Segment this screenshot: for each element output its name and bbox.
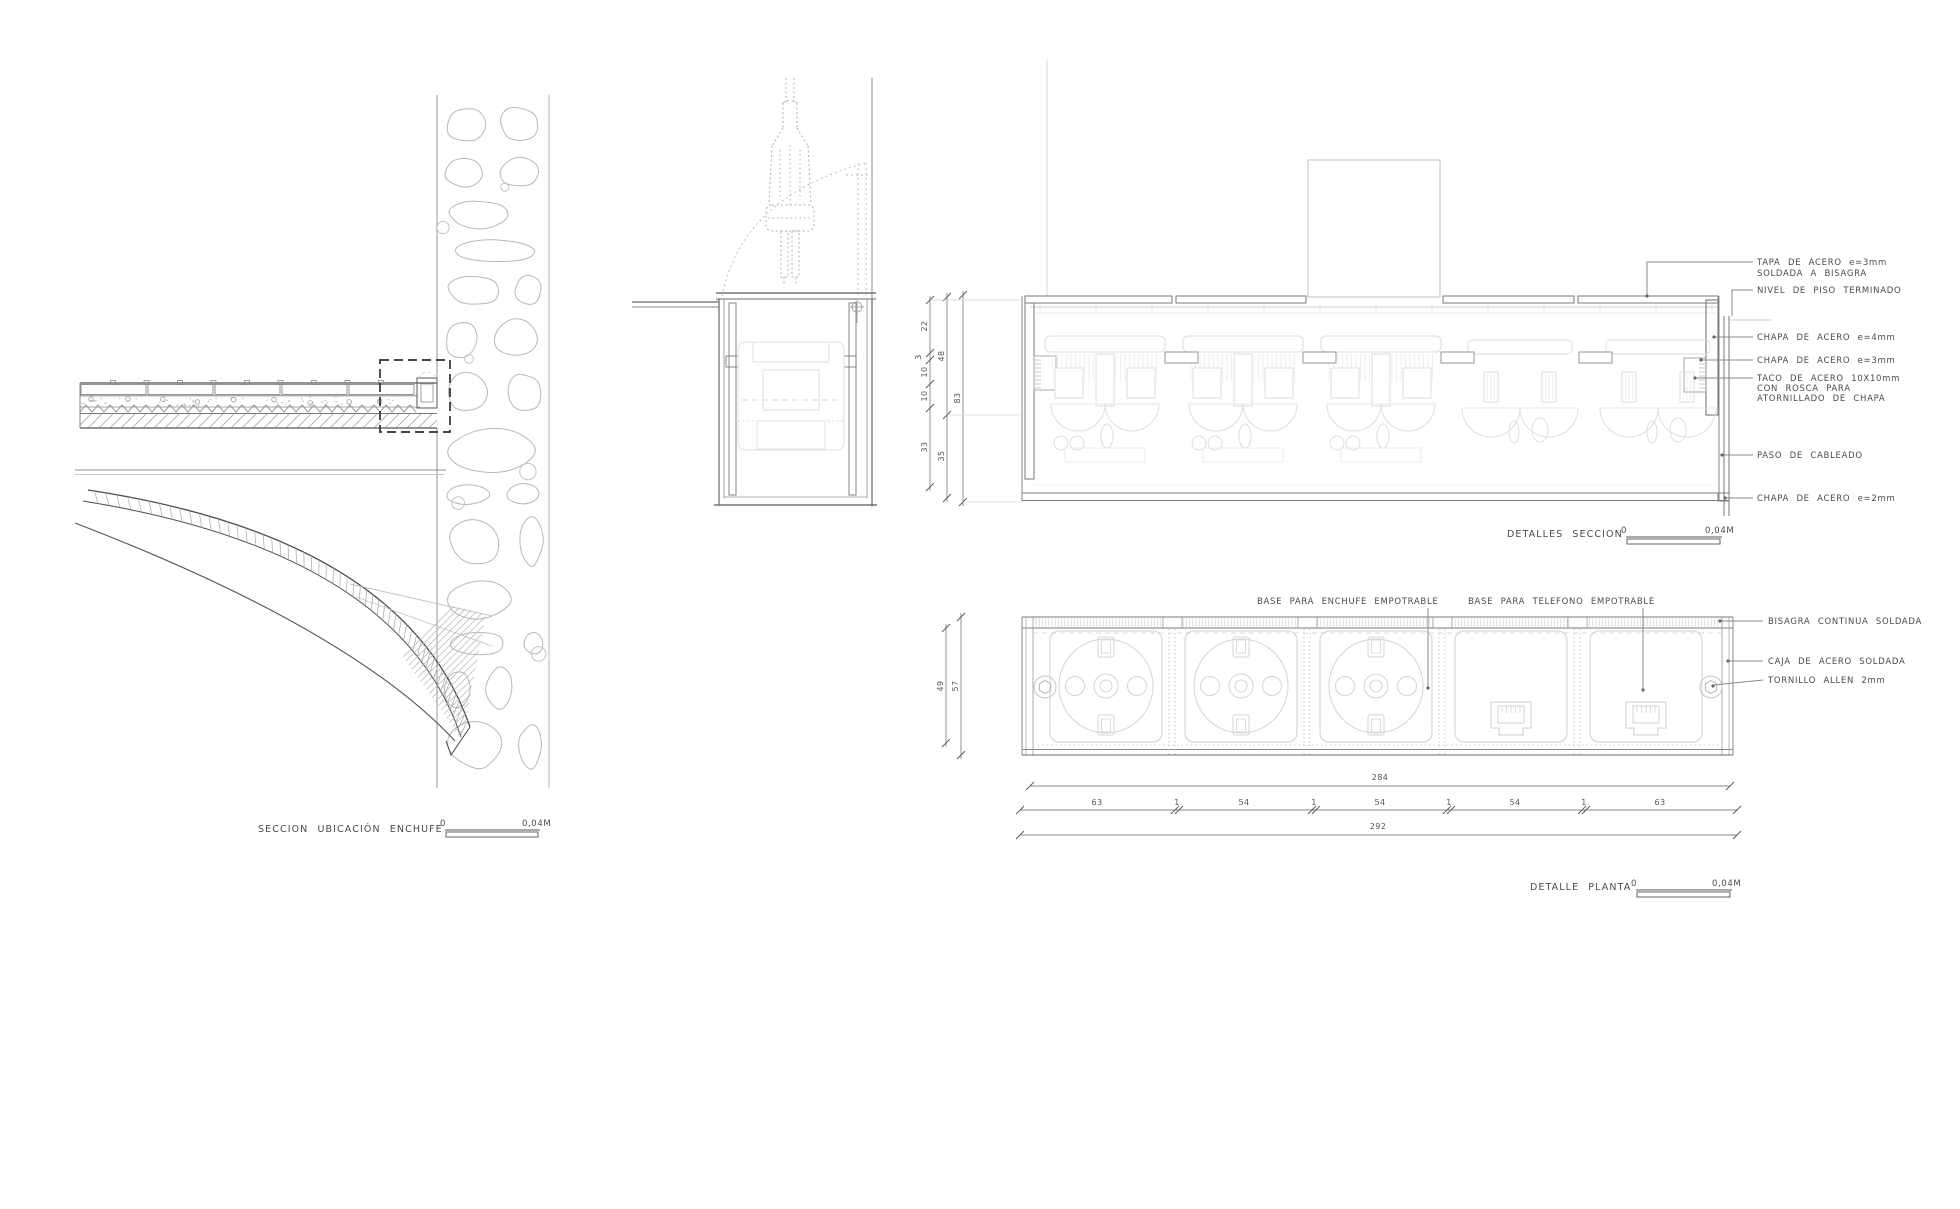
plan-detail-view: BASE PARA ENCHUFE EMPOTRABLE BASE PARA T… <box>936 597 1922 897</box>
clip-right <box>844 356 856 367</box>
svg-text:48: 48 <box>937 351 946 362</box>
svg-text:292: 292 <box>1370 822 1386 831</box>
svg-text:SOLDADA A BISAGRA: SOLDADA A BISAGRA <box>1757 269 1867 279</box>
svg-text:CON ROSCA PARA: CON ROSCA PARA <box>1757 384 1851 394</box>
svg-text:0,04M: 0,04M <box>522 819 551 829</box>
section-detail-view: 22 3 10 10 33 48 35 83 TAPA DE ACERO e=3… <box>914 60 1901 544</box>
label-nivel-piso: NIVEL DE PISO TERMINADO <box>1757 286 1901 296</box>
label-tapa-acero: TAPA DE ACERO e=3mm <box>1756 258 1887 268</box>
wedge-hatch <box>300 560 717 760</box>
plan-dim-texts: 284 63 1 54 1 54 1 54 1 63 292 <box>1092 773 1666 831</box>
section-label-texts: TAPA DE ACERO e=3mm SOLDADA A BISAGRA NI… <box>1756 258 1901 504</box>
svg-text:10: 10 <box>920 367 929 378</box>
label-tornillo-allen: TORNILLO ALLEN 2mm <box>1767 676 1886 686</box>
insulation-zigzag <box>80 405 416 412</box>
svg-text:63: 63 <box>1655 798 1666 807</box>
taco-left-threads <box>1035 360 1041 388</box>
svg-text:0: 0 <box>1631 879 1637 889</box>
middle-section-detail <box>632 78 877 507</box>
pedestal <box>1308 160 1440 297</box>
svg-text:49: 49 <box>936 681 945 692</box>
svg-text:284: 284 <box>1372 773 1388 782</box>
svg-text:57: 57 <box>951 681 960 692</box>
svg-text:54: 54 <box>1375 798 1386 807</box>
label-chapa-3mm: CHAPA DE ACERO e=3mm <box>1757 356 1895 366</box>
svg-text:33: 33 <box>920 442 929 453</box>
label-chapa-2mm: CHAPA DE ACERO e=2mm <box>1757 494 1895 504</box>
label-chapa-4mm: CHAPA DE ACERO e=4mm <box>1757 333 1895 343</box>
end-plate-left <box>1025 303 1034 479</box>
socket-mechanism-faint <box>738 342 845 450</box>
label-taco-acero: TACO DE ACERO 10X10mm <box>1756 374 1900 384</box>
left-view-title: SECCION UBICACIÓN ENCHUFE <box>258 823 443 835</box>
floor-box-section <box>714 293 877 505</box>
plan-right-leaders <box>1711 619 1763 687</box>
hinge-comb <box>1036 617 1718 628</box>
socket-mechanisms-row <box>1045 336 1716 462</box>
cord-swing-arc <box>722 163 874 296</box>
plug-dashed-outline <box>766 78 814 284</box>
section-detail-title: DETALLES SECCION <box>1507 529 1623 540</box>
svg-text:1: 1 <box>1581 798 1587 807</box>
left-section-view: SECCION UBICACIÓN ENCHUFE 0 0,04M <box>66 95 717 837</box>
arch-hatch <box>94 491 467 736</box>
svg-text:54: 54 <box>1510 798 1521 807</box>
section-dim-texts: 22 3 10 10 33 48 35 83 <box>914 321 962 462</box>
svg-text:0: 0 <box>440 819 446 829</box>
inner-plate-right <box>849 303 856 495</box>
svg-text:0,04M: 0,04M <box>1712 879 1741 889</box>
inner-plate-left <box>729 303 736 495</box>
svg-text:1: 1 <box>1311 798 1317 807</box>
floor-slab <box>66 372 443 428</box>
plan-detail-title: DETALLE PLANTA <box>1530 882 1631 893</box>
svg-text:54: 54 <box>1239 798 1250 807</box>
label-bisagra: BISAGRA CONTINUA SOLDADA <box>1768 617 1922 627</box>
plan-detail-scalebar: 0 0,04M <box>1631 879 1741 897</box>
allen-screws <box>1034 676 1722 698</box>
left-view-scalebar: 0 0,04M <box>440 819 551 837</box>
label-caja-acero: CAJA DE ACERO SOLDADA <box>1768 657 1905 667</box>
vault-arch <box>75 490 717 760</box>
cad-drawing: SECCION UBICACIÓN ENCHUFE 0 0,04M <box>0 0 1960 1209</box>
section-detail-scalebar: 0 0,04M <box>1621 526 1734 544</box>
svg-text:0,04M: 0,04M <box>1705 526 1734 536</box>
hinge-pin <box>850 300 864 323</box>
svg-text:10: 10 <box>920 391 929 402</box>
taco-right-threads <box>1699 360 1705 388</box>
svg-text:0: 0 <box>1621 526 1627 536</box>
svg-text:1: 1 <box>1174 798 1180 807</box>
svg-text:35: 35 <box>937 451 946 462</box>
lid-swing-arc <box>418 372 437 378</box>
svg-text:83: 83 <box>953 393 962 404</box>
section-box <box>1022 296 1772 516</box>
svg-text:3: 3 <box>914 354 923 360</box>
svg-text:1: 1 <box>1446 798 1452 807</box>
label-base-enchufe: BASE PARA ENCHUFE EMPOTRABLE <box>1257 597 1438 607</box>
slab-diagonal-hatch <box>66 414 443 428</box>
plan-modules <box>1050 631 1702 742</box>
svg-text:ATORNILLADO DE CHAPA: ATORNILLADO DE CHAPA <box>1757 394 1885 404</box>
plan-box <box>1022 617 1733 757</box>
label-base-telefono: BASE PARA TELEFONO EMPOTRABLE <box>1468 597 1655 607</box>
chapa-right <box>1706 300 1718 415</box>
screed-dots <box>82 396 394 406</box>
svg-text:63: 63 <box>1092 798 1103 807</box>
section-dim-chains <box>926 291 1022 506</box>
svg-text:22: 22 <box>920 321 929 332</box>
label-paso-cableado: PASO DE CABLEADO <box>1757 451 1863 461</box>
